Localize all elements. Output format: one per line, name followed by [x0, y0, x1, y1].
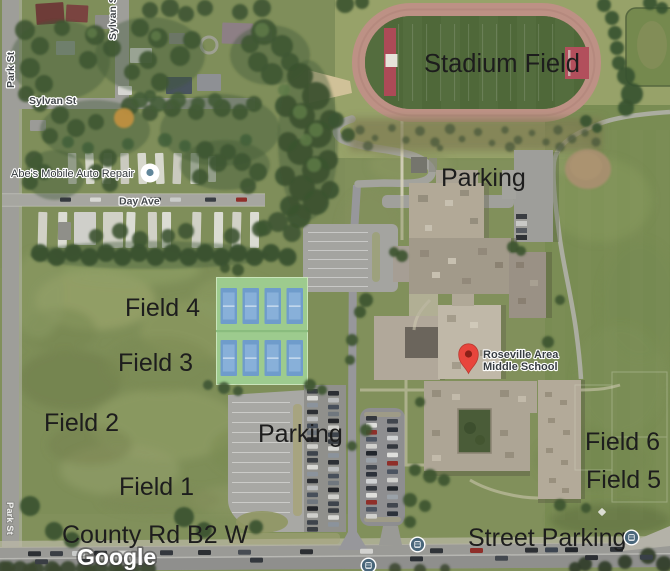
svg-text:Sylvan St: Sylvan St: [107, 0, 119, 40]
svg-text:Parking: Parking: [441, 164, 526, 192]
svg-text:Abe's Mobile Auto Repair: Abe's Mobile Auto Repair: [11, 168, 135, 180]
svg-text:Field 5: Field 5: [586, 466, 661, 494]
svg-text:Parking: Parking: [258, 420, 343, 448]
svg-text:Street Parking: Street Parking: [468, 524, 626, 552]
svg-text:Field 3: Field 3: [118, 349, 193, 377]
svg-text:Sylvan St: Sylvan St: [29, 95, 77, 107]
svg-text:Middle School: Middle School: [483, 361, 558, 373]
svg-text:Day Ave: Day Ave: [119, 196, 160, 208]
svg-text:Field 1: Field 1: [119, 473, 194, 501]
svg-text:Field 4: Field 4: [125, 294, 200, 322]
svg-text:Roseville Area: Roseville Area: [483, 349, 559, 361]
svg-text:Field 6: Field 6: [585, 428, 660, 456]
svg-text:Park St: Park St: [4, 502, 15, 536]
svg-text:Field 2: Field 2: [44, 409, 119, 437]
svg-text:Stadium Field: Stadium Field: [424, 50, 580, 78]
svg-text:Park St: Park St: [5, 51, 17, 88]
svg-text:Google: Google: [77, 544, 156, 570]
